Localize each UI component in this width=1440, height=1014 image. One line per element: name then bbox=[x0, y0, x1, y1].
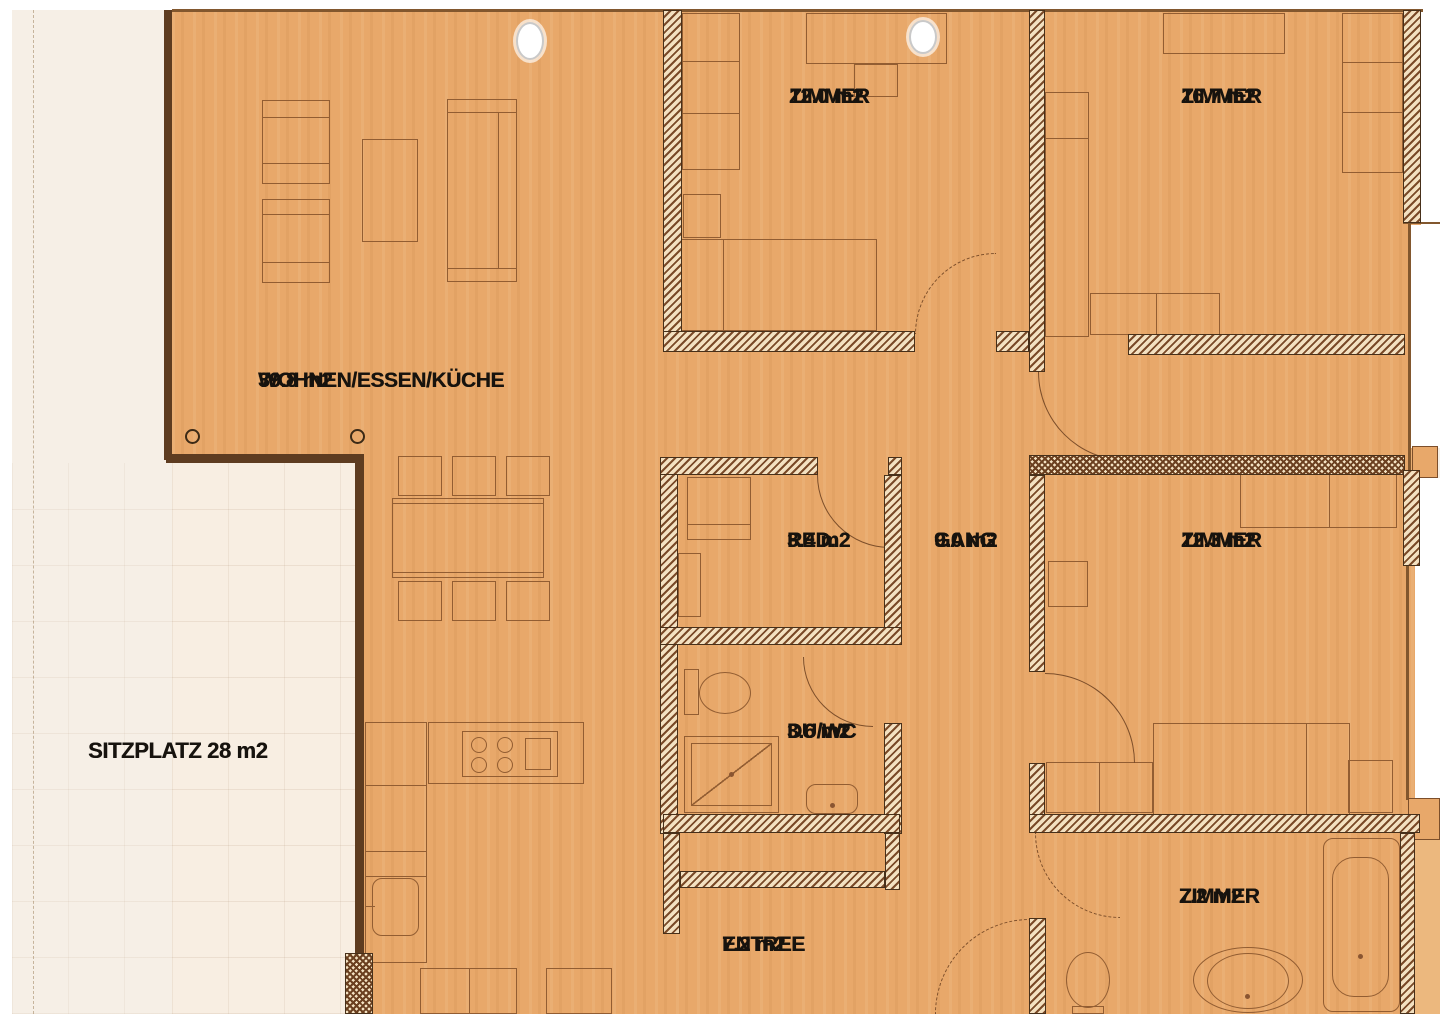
room-area: 12.0 m2 bbox=[789, 82, 863, 112]
room-area: 39.8 m2 bbox=[258, 366, 332, 396]
room-labels-layer: WOHNEN/ESSEN/KÜCHE39.8 m2ZIMMER12.0 m2ZI… bbox=[0, 0, 1440, 1014]
room-area: 3.6 m2 bbox=[787, 717, 850, 747]
room-area: 12.3 m2 bbox=[1181, 526, 1255, 556]
room-area: 7.2 m2 bbox=[1179, 882, 1242, 912]
punch-hole-icon bbox=[516, 22, 544, 60]
room-area: 9.0 m2 bbox=[934, 526, 997, 556]
room-area: 3.4 m2 bbox=[787, 526, 850, 556]
room-area: 16.7 m2 bbox=[1181, 82, 1255, 112]
floorplan-scan: WOHNEN/ESSEN/KÜCHE39.8 m2ZIMMER12.0 m2ZI… bbox=[0, 0, 1440, 1014]
room-name: SITZPLATZ 28 m2 bbox=[88, 736, 267, 766]
room-area: 7.2 m2 bbox=[722, 930, 785, 960]
punch-hole-icon bbox=[909, 20, 937, 54]
